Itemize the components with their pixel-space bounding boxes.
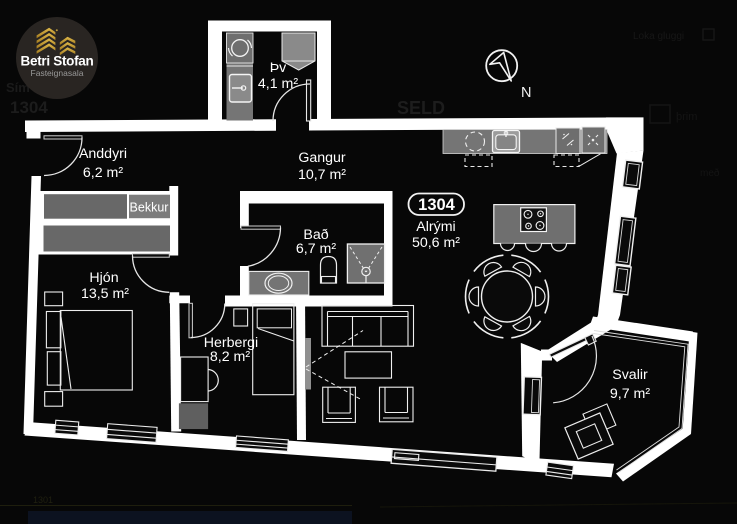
svg-text:Betri Stofan: Betri Stofan [21,54,94,69]
svg-text:Alrými: Alrými [416,219,455,235]
svg-text:Svalir: Svalir [612,367,648,383]
svg-text:4,1 m²: 4,1 m² [258,76,298,92]
svg-text:13,5 m²: 13,5 m² [81,286,129,302]
svg-text:1301: 1301 [33,495,53,505]
svg-text:Gangur: Gangur [298,150,346,166]
svg-text:50,6 m²: 50,6 m² [412,235,460,251]
svg-text:9,7 m²: 9,7 m² [610,386,650,402]
svg-text:Loka gluggi: Loka gluggi [633,31,684,42]
svg-text:SELD: SELD [397,98,445,118]
svg-text:Fasteignasala: Fasteignasala [31,68,84,78]
svg-text:1304: 1304 [418,196,456,214]
svg-text:þrim: þrim [676,111,697,123]
svg-text:Þv: Þv [270,60,287,76]
svg-text:Anddyri: Anddyri [79,146,127,162]
svg-text:8,2 m²: 8,2 m² [210,349,250,365]
svg-text:6,2 m²: 6,2 m² [83,165,123,181]
svg-text:Hjón: Hjón [89,270,118,286]
svg-text:6,7 m²: 6,7 m² [296,241,336,257]
svg-text:N: N [521,85,531,101]
svg-text:Bekkur: Bekkur [130,201,169,215]
svg-text:10,7 m²: 10,7 m² [298,167,346,183]
svg-text:með: með [700,167,720,179]
svg-text:1304: 1304 [10,98,48,117]
